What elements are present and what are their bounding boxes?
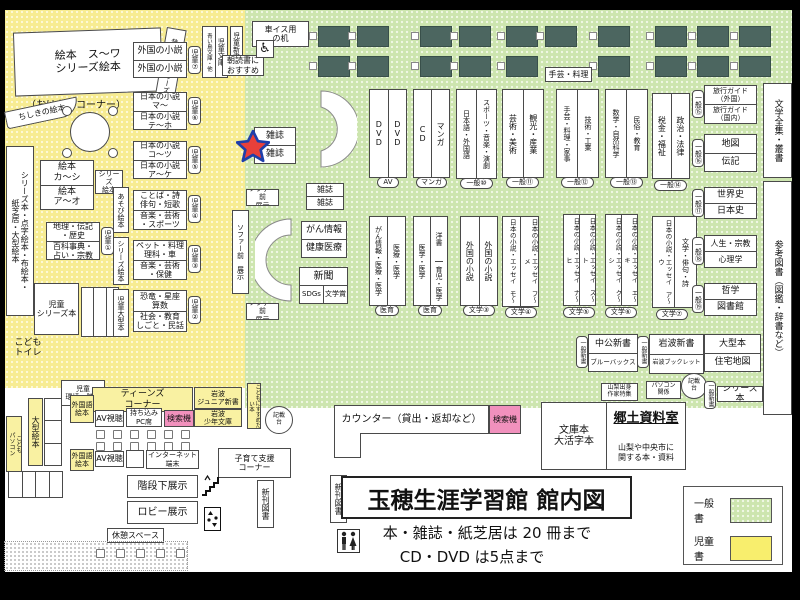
badge-general-18: 一般⑱ (692, 237, 704, 265)
shelf-label: 手芸・料理・家事 (557, 90, 577, 177)
shelf-label: 音楽・芸術 ・スポーツ (134, 210, 186, 230)
shelf-label: 医学・医学 (414, 217, 430, 305)
chair (147, 430, 156, 439)
large-books-housing-map-shelf: 大型本 住宅地図 (704, 334, 761, 372)
shelf-label: 日本の小説 コ～ツ (134, 141, 186, 159)
kids-foreign-novels-shelf: 外国の小説 外国の小説 (133, 42, 187, 78)
jp-novels-ku-shelf: 日本の小説・エッセイ ク～シ 日本の小説・エッセイ エ～キ (605, 214, 638, 306)
badge-general-10: 一般⑩ (460, 178, 493, 189)
map-biography-shelf: 地図 伝記 (704, 134, 757, 172)
reading-table (420, 56, 452, 77)
shelf-label: 外国の小説 (134, 60, 186, 78)
legend-general-label: 一般書 (694, 495, 722, 525)
shelf-label: 数学・自然科学 (606, 90, 626, 177)
shelf-label: 恐竜・星座 算数 (134, 291, 186, 311)
magazine-shelf: 雑誌 雑誌 (306, 183, 344, 210)
shelf-label: 日本の小説 ア～ケ (134, 160, 186, 179)
chair (62, 148, 72, 158)
reading-table (506, 56, 538, 77)
badge-shinsho: 一般新書 (576, 336, 588, 368)
floor-map: 絵本 ス～ワ シリーズ絵本 昔ばなしシリーズ絵本 （おはなしコーナー） ちしきの… (0, 0, 800, 600)
reading-table (598, 26, 630, 47)
shelf-label: 新聞 (300, 268, 347, 285)
kids-toilet-label: こども トイレ (6, 335, 50, 361)
recommended-for-kids-shelf: こどもにすすめたい本 (247, 383, 261, 429)
shelf-label: 旅行ガイド （外国） (705, 86, 756, 104)
shelf-label: がん情報 (302, 222, 346, 239)
shelf-label: ペット・料理 理科・車 (134, 241, 186, 260)
shelf-label: マンガ (431, 90, 449, 177)
shelf-label: 日本の小説・エッセイ モ～ (503, 217, 520, 306)
world-japan-history-shelf: 世界史 日本史 (704, 187, 757, 219)
badge-kids-5: 児童⑤ (188, 146, 201, 174)
paperback-large-print-label: 文庫本 大活字本 (542, 403, 606, 469)
shelf-label: 外国の小説 (479, 217, 498, 305)
badge-kids-2: 児童② (188, 296, 201, 324)
travel-guide-shelf: 旅行ガイド （外国） 旅行ガイド （国内） (704, 85, 757, 124)
badge-shinsho: 一般新書 (637, 336, 649, 368)
foreign-language-picture-books-shelf: 外国語 絵本 (70, 449, 94, 471)
iwanami-shonen-bunko-shelf: 岩波 少年文庫 (194, 409, 242, 427)
chair (130, 430, 139, 439)
curved-sofa (255, 216, 303, 304)
sofa-front-display: ソファー前 展示 (246, 303, 279, 320)
kids-dinosaur-society-shelf: 恐竜・星座 算数 社会・教育 しごと・民話 (133, 290, 187, 332)
play-picture-books-shelf: あそび絵本 (113, 187, 129, 233)
chair (136, 549, 145, 558)
legend-children-swatch (730, 536, 772, 561)
lobby-display: ロビー展示 (127, 501, 198, 524)
tax-welfare-politics-shelf: 税金・福祉 政治・法律 (652, 93, 690, 179)
reading-table (697, 26, 729, 47)
children-large-books-shelf: 児童大型本 (113, 289, 129, 337)
shelf-label: 税金・福祉 (653, 94, 671, 178)
stairs-icon (200, 473, 220, 497)
reading-table (739, 56, 771, 77)
literary-award-label: 文学賞 (323, 286, 347, 303)
shelf-label: 医療・医学 (387, 217, 405, 305)
shelf-label: 心理学 (705, 251, 756, 267)
bench-seat (49, 472, 63, 497)
map-title: 玉穂生涯学習館 館内図 (341, 476, 632, 519)
shelf-label: がん情報・医療・医学 (370, 217, 387, 305)
shelf-cells: SDGs 文学賞 (300, 285, 347, 303)
shelf-label: 岩波ブックレット (650, 354, 703, 374)
lending-rule-books: 本・雑誌・紙芝居は 20 冊まで (337, 522, 637, 543)
shelf-label: 雑誌 (307, 184, 343, 196)
dvd-shelf: DVD DVD (369, 89, 407, 178)
shelf-label: 地理・伝記 ・歴史 (47, 222, 99, 240)
reading-table (739, 26, 771, 47)
foreign-language-picture-books-shelf: 外国語 絵本 (70, 395, 94, 423)
badge-medical: 医育 (418, 305, 442, 316)
local-materials-room: 文庫本 大活字本 郷土資料室 山梨や中央市に 関する本・資料 (541, 402, 686, 470)
computer-books-shelf: パソコン 関係 (646, 381, 681, 399)
shelf-cell (93, 288, 105, 336)
reading-table (420, 26, 452, 47)
av-viewing-seat: AV視聴 (95, 451, 124, 467)
reference-books-shelf: 参考図書（図鑑・辞書など） (763, 181, 792, 415)
search-terminal[interactable]: 検索機 (489, 405, 521, 434)
chair (113, 430, 122, 439)
sdgs-label: SDGs (300, 286, 323, 303)
chair (108, 148, 118, 158)
counter-wing (334, 433, 361, 458)
badge-general-13: 一般⑬ (610, 177, 643, 188)
search-terminal-kids[interactable]: 検索機 (164, 410, 194, 427)
series-books-shelf: シリーズ本 (717, 386, 763, 402)
kids-geography-history-shelf: 地理・伝記 ・歴史 百科事典・ 占い・宗教 (46, 222, 100, 260)
philosophy-library-shelf: 哲学 図書館 (704, 283, 757, 316)
badge-kids-3: 児童③ (188, 245, 201, 273)
reading-table (459, 56, 491, 77)
reading-table (357, 26, 389, 47)
shelf-label: 技術・工業 (577, 90, 598, 177)
legend-general-row: 一般書 (694, 495, 772, 525)
iwanami-junior-shinsho-shelf: 岩波 ジュニア新書 (194, 387, 242, 409)
shelf-label: 日本の小説・エッセイ フ～メ (520, 217, 538, 306)
foreign-novels-shelf: 外国の小説 外国の小説 (460, 216, 498, 306)
shelf-label: 哲学 (705, 284, 756, 299)
life-religion-psychology-shelf: 人生・宗教 心理学 (704, 235, 757, 268)
cd-manga-shelf: CD マンガ (413, 89, 450, 178)
bench (8, 471, 63, 498)
shelf-label: 伝記 (705, 153, 756, 172)
badge-general-15: 一般⑮ (692, 90, 704, 118)
chair (96, 549, 105, 558)
chair (116, 549, 125, 558)
shelf-label: 日本の小説・エッセイ ア～ウ (653, 217, 674, 307)
shelf-label: 音楽・芸術 ・保健 (134, 260, 186, 280)
shelf-label: 中公新書 (589, 335, 637, 353)
medicine-western-books-shelf: 医学・医学 洋書 育児・医学 (413, 216, 448, 306)
jp-novels-na-shelf: 日本の小説・エッセイ ナ～ヒ 日本の小説・エッセイ ス～ト (563, 214, 596, 306)
shelf-label: 観光・産業 (523, 90, 544, 177)
reading-table (598, 56, 630, 77)
shelf-label: 外国の小説 (461, 217, 479, 305)
shelf-block (44, 398, 62, 466)
shelf-label: 大型本 (705, 335, 760, 353)
desk (126, 450, 144, 468)
chair (156, 549, 165, 558)
shelf-cells: 洋書 育児・医学 (430, 217, 447, 305)
children-series-books-shelf: 児童 シリーズ本 (34, 283, 79, 335)
shelf-label: 日本史 (705, 203, 756, 219)
shelf-label: スポーツ・音楽・演劇 (476, 90, 496, 178)
handicraft-cooking-label: 手芸・料理 (545, 67, 592, 82)
lending-rule-av: CD・DVD は5点まで (322, 546, 622, 567)
shelf-label: 住宅地図 (705, 353, 760, 372)
art-tourism-shelf: 芸術・美術 観光・産業 (502, 89, 544, 178)
badge-literature-3: 文学③ (463, 305, 495, 316)
badge-kids-6: 児童⑥ (188, 97, 201, 125)
shelf-label: 雑誌 (307, 196, 343, 209)
shelf-label: 日本の小説 マ～ (134, 92, 186, 110)
reading-table (697, 56, 729, 77)
local-room-title: 郷土資料室 (613, 403, 678, 436)
badge-general-19: 一般⑲ (692, 285, 704, 313)
circulation-counter[interactable]: カウンター（貸出・返却など） (334, 405, 489, 434)
chair (176, 549, 185, 558)
bench-seat (35, 472, 49, 497)
elevator-icon (204, 507, 221, 531)
handicraft-technology-shelf: 手芸・料理・家事 技術・工業 (556, 89, 599, 178)
current-location-star-icon (236, 129, 270, 163)
shelf-label: ブルーバックス (589, 353, 637, 372)
local-room-desc: 山梨や中央市に 関する本・資料 (618, 436, 674, 469)
braille-cloth-kamishibai-shelf: シリーズ本・点字絵本・布絵本・ 紙芝居・大型絵本 (6, 146, 34, 316)
shelf-label: 日本の小説・エッセイ ク～シ (606, 215, 621, 305)
shelf-label: 日本語・外国語 (457, 90, 476, 178)
shelf-label: 日本の小説・エッセイ ス～ト (579, 215, 595, 305)
badge-literature-6: 文学⑥ (605, 307, 637, 318)
shelf-label: 百科事典・ 占い・宗教 (47, 241, 99, 260)
literature-collections-shelf: 文学全集・叢書 (763, 83, 792, 178)
chair (181, 430, 190, 439)
wheelchair-icon: ♿ (256, 40, 274, 58)
shelf-label: 日本の小説 テ～ホ (134, 111, 186, 130)
newspaper-shelf: 新聞 SDGs 文学賞 (299, 267, 348, 304)
chair (113, 442, 122, 451)
series-picture-books-shelf: シリーズ絵本 (113, 237, 129, 285)
shelf-label: 洋書 (435, 217, 443, 261)
shelf-label: 青い鳥文庫・他 (203, 27, 215, 77)
badge-shinsho: 一般新書 (704, 381, 716, 409)
cancer-info-health-shelf: がん情報 健康医療 (301, 221, 347, 258)
badge-literature-4: 文学④ (505, 307, 537, 318)
shelf-cell (45, 399, 61, 420)
shelf-label: 社会・教育 しごと・民話 (134, 311, 186, 332)
shelf-label: DVD (370, 90, 388, 177)
reading-table (506, 26, 538, 47)
kids-pets-science-shelf: ペット・料理 理科・車 音楽・芸術 ・保健 (133, 240, 187, 280)
chair (108, 106, 118, 116)
math-science-folklore-shelf: 数学・自然科学 民俗・教育 (605, 89, 648, 178)
large-picture-books-shelf: 大型絵本 (28, 398, 43, 466)
kids-language-arts-shelf: ことば・詩 俳句・短歌 音楽・芸術 ・スポーツ (133, 190, 187, 230)
shelf-label: 政治・法律 (671, 94, 690, 178)
shelf-label: CD (414, 90, 431, 177)
badge-general-16: 一般⑯ (692, 139, 704, 167)
shelf-label: 外国の小説 (134, 43, 186, 60)
badge-literature-7: 文学⑦ (656, 309, 688, 320)
local-room-labels: 郷土資料室 山梨や中央市に 関する本・資料 (606, 403, 685, 469)
childcare-support-corner: 子育て支援 コーナー (218, 448, 291, 478)
legend-children-row: 児童書 (694, 533, 772, 563)
chair (164, 430, 173, 439)
badge-general-12: 一般⑫ (561, 177, 594, 188)
reading-table (318, 26, 350, 47)
shelf-label: 絵本 ア～オ (41, 185, 93, 210)
writing-stand: 記載 台 (265, 406, 293, 434)
shelf-label: 旅行ガイド （国内） (705, 104, 756, 123)
shelf-label: 岩波新書 (650, 335, 703, 354)
legend-children-label: 児童書 (694, 533, 722, 563)
jp-novels-mo-shelf: 日本の小説・エッセイ モ～ 日本の小説・エッセイ フ～メ (502, 216, 539, 307)
kids-jp-novels-ma-shelf: 日本の小説 マ～ 日本の小説 テ～ホ (133, 92, 187, 130)
round-table (70, 112, 110, 152)
shelf-label: 育児・医学 (435, 261, 443, 306)
sofa-front-display-vertical: ソファー前 展示 (232, 210, 249, 294)
reading-table (357, 56, 389, 77)
badge-kids-7: 児童⑦ (188, 46, 201, 74)
av-viewing-seat: AV視聴 (95, 410, 124, 427)
shelf-cell (45, 443, 61, 465)
yamanashi-authors-feature: 山梨出身 作家特集 (601, 383, 638, 401)
chair (62, 106, 72, 116)
shelf-label: 世界史 (705, 188, 756, 203)
internet-terminal[interactable]: インターネット 端末 (146, 450, 199, 469)
badge-literature-5: 文学⑤ (563, 307, 595, 318)
shelf-label: 芸術・美術 (503, 90, 523, 177)
kids-jp-novels-ko-shelf: 日本の小説 コ～ツ 日本の小説 ア～ケ (133, 141, 187, 179)
new-books-shelf: 新刊図書 (257, 480, 274, 528)
kids-picture-books-ka-shelf: 絵本 カ～シ 絵本 ア～オ (40, 160, 94, 210)
badge-kids-4: 児童④ (188, 195, 201, 223)
badge-general-11: 一般⑪ (506, 177, 539, 188)
shelf-label: 民俗・教育 (626, 90, 647, 177)
bench-seat (22, 472, 36, 497)
reading-table (655, 56, 687, 77)
badge-av: AV (377, 177, 399, 188)
shelf-cell (45, 420, 61, 442)
chair (96, 430, 105, 439)
shelf-label: 図書館 (705, 299, 756, 315)
sofa-front-display: ソファー前 展示 (246, 189, 279, 206)
badge-manga: マンガ (416, 177, 447, 188)
chuko-shinsho-shelf: 中公新書 ブルーバックス (588, 334, 638, 372)
legend-general-swatch (730, 498, 772, 523)
reading-table (318, 56, 350, 77)
cancer-medical-shelf: がん情報・医療・医学 医療・医学 (369, 216, 406, 306)
shelf-label: 地図 (705, 135, 756, 153)
chair (96, 442, 105, 451)
morning-reading-recommendation: 朝読書に おすすめ (222, 55, 264, 76)
shelf-label: 日本の小説・エッセイ エ～キ (621, 215, 637, 305)
reading-table (459, 26, 491, 47)
reading-table (655, 26, 687, 47)
legend: 一般書 児童書 (683, 486, 783, 565)
badge-general-14: 一般⑭ (654, 180, 687, 191)
shelf-label: 健康医療 (302, 239, 346, 257)
shelf-label: ことば・詩 俳句・短歌 (134, 191, 186, 210)
shelf-label: 日本の小説・エッセイ ナ～ヒ (564, 215, 579, 305)
kids-computer: こども パソコン (6, 416, 22, 472)
iwanami-shinsho-shelf: 岩波新書 岩波ブックレット (649, 334, 704, 374)
shelf-label: 絵本 カ～シ (41, 161, 93, 185)
bench-seat (9, 472, 22, 497)
byod-pc-seat: 持ち込み PC席 (126, 408, 162, 427)
badge-general-17: 一般⑰ (692, 189, 704, 217)
curved-sofa (309, 88, 357, 170)
language-sports-shelf: 日本語・外国語 スポーツ・音楽・演劇 (456, 89, 497, 179)
shelf-label: 人生・宗教 (705, 236, 756, 251)
jp-novels-a-literature-shelf: 日本の小説・エッセイ ア～ウ 文学・俳句・詩 (652, 216, 697, 308)
reading-table (545, 26, 577, 47)
under-stairs-display: 階段下展示 (127, 475, 198, 498)
badge-medical: 医育 (375, 305, 399, 316)
shelf-cell (82, 288, 93, 336)
shelf-label: DVD (388, 90, 407, 177)
